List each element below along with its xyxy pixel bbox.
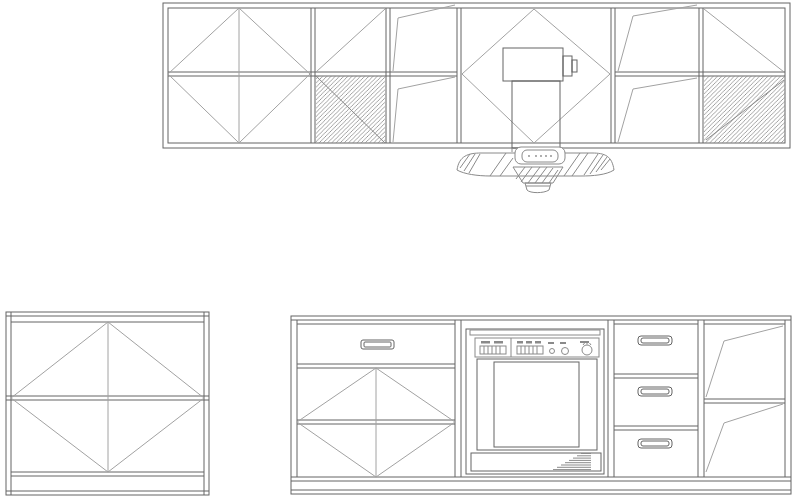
dishwasher [466, 329, 604, 474]
upper-cabinet-open-left [393, 5, 455, 142]
kitchen-elevation-drawing [0, 0, 799, 500]
drawing-canvas [0, 0, 799, 500]
upper-cabinet-glass-right [704, 9, 785, 143]
upper-cabinet-hood-housing [462, 9, 610, 148]
upper-cabinet-open-right [618, 5, 697, 142]
extractor-hood [457, 147, 614, 193]
base-cabinet-left [6, 312, 209, 495]
upper-cabinet-glass-left [316, 9, 385, 143]
base-drawer-stack [614, 336, 698, 448]
base-cabinet-drawer-door [297, 340, 455, 477]
